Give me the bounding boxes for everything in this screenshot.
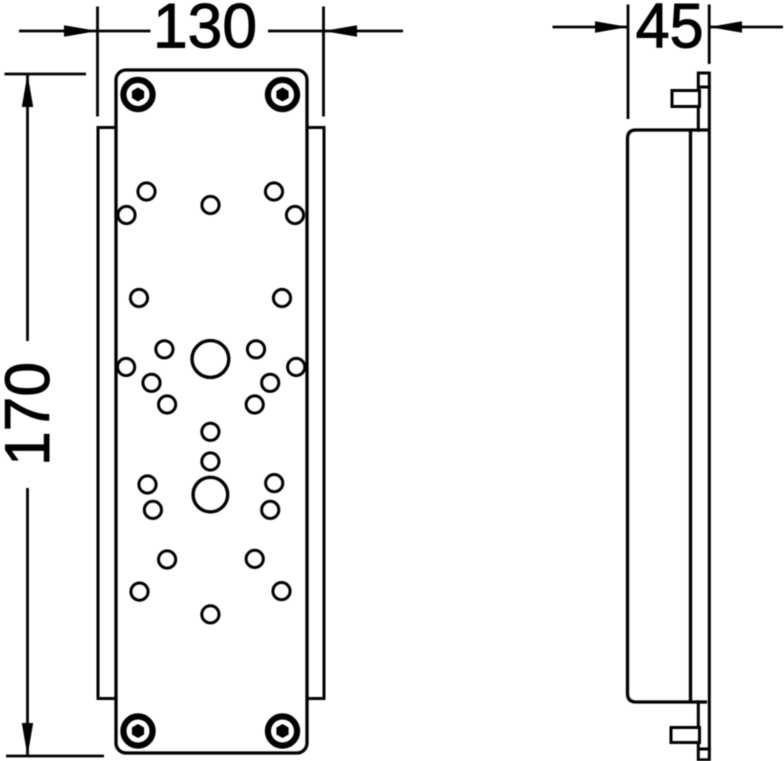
svg-text:130: 130 xyxy=(153,0,257,61)
svg-text:170: 170 xyxy=(0,362,63,466)
svg-text:45: 45 xyxy=(636,0,704,62)
